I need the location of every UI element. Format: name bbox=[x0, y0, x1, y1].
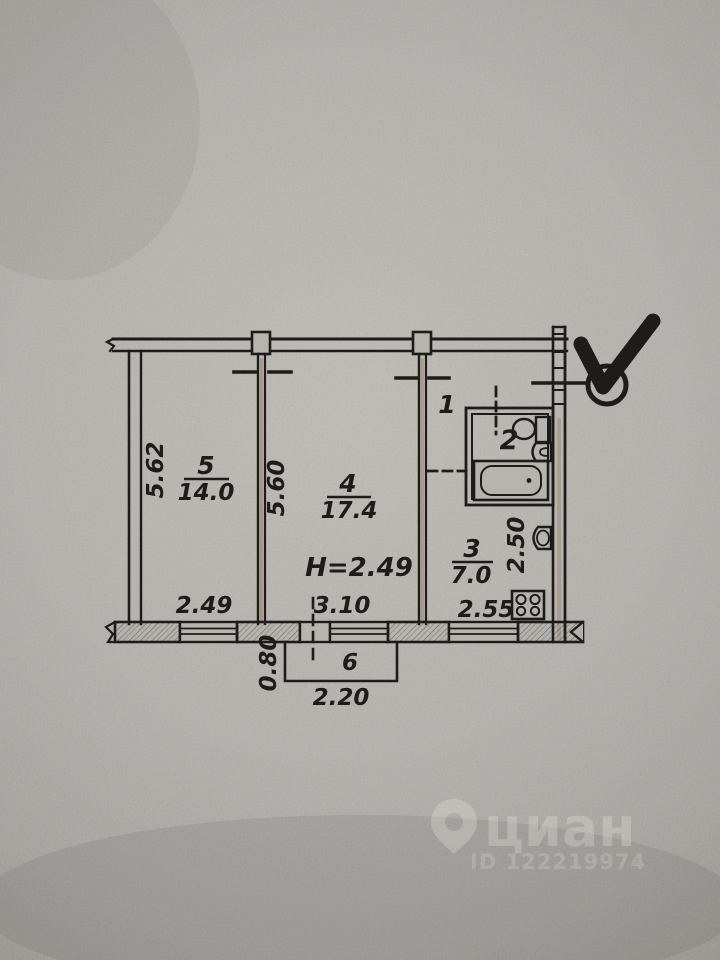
wall-pier bbox=[106, 622, 180, 642]
room5-area: 14.0 bbox=[178, 480, 235, 506]
room3-area: 7.0 bbox=[451, 563, 492, 589]
room3-number: 3 bbox=[463, 534, 480, 563]
dim-balcony-depth: 0.80 bbox=[256, 635, 282, 692]
dim-room4-width: 3.10 bbox=[314, 593, 371, 619]
balcony-number: 6 bbox=[342, 650, 358, 676]
dim-room4-height: 5.60 bbox=[264, 460, 290, 517]
window-room5 bbox=[180, 622, 237, 642]
bottom-wall bbox=[106, 622, 583, 642]
dim-kitchen-height: 2.50 bbox=[504, 517, 530, 574]
window-room4 bbox=[330, 622, 388, 642]
room4-area: 17.4 bbox=[321, 498, 378, 524]
ceiling-height-note: H=2.49 bbox=[305, 553, 413, 583]
watermark-id: ID 122219974 bbox=[470, 850, 646, 874]
dim-kitchen-width: 2.55 bbox=[458, 597, 515, 623]
floorplan-scan: 5 14.0 4 17.4 3 7.0 1 2 6 H=2.49 5.62 5.… bbox=[0, 0, 720, 960]
floor-plan-svg: 5 14.0 4 17.4 3 7.0 1 2 6 H=2.49 5.62 5.… bbox=[0, 0, 720, 960]
top-wall-pillar-left bbox=[252, 332, 270, 354]
dim-room5-width: 2.49 bbox=[176, 593, 233, 619]
room4-number: 4 bbox=[338, 469, 356, 498]
wall-room4-hall bbox=[419, 354, 426, 624]
room5-number: 5 bbox=[197, 451, 214, 480]
bath-number: 2 bbox=[500, 425, 519, 456]
wall-pier bbox=[518, 622, 583, 642]
wall-pier bbox=[388, 622, 449, 642]
top-wall-pillar-right bbox=[413, 332, 431, 354]
balcony-door-block bbox=[300, 622, 330, 642]
dim-balcony-width: 2.20 bbox=[313, 685, 370, 711]
dim-room5-height: 5.62 bbox=[143, 442, 169, 499]
hall-number: 1 bbox=[438, 390, 455, 419]
window-kitchen bbox=[449, 622, 518, 642]
bathtub-icon bbox=[474, 461, 548, 500]
